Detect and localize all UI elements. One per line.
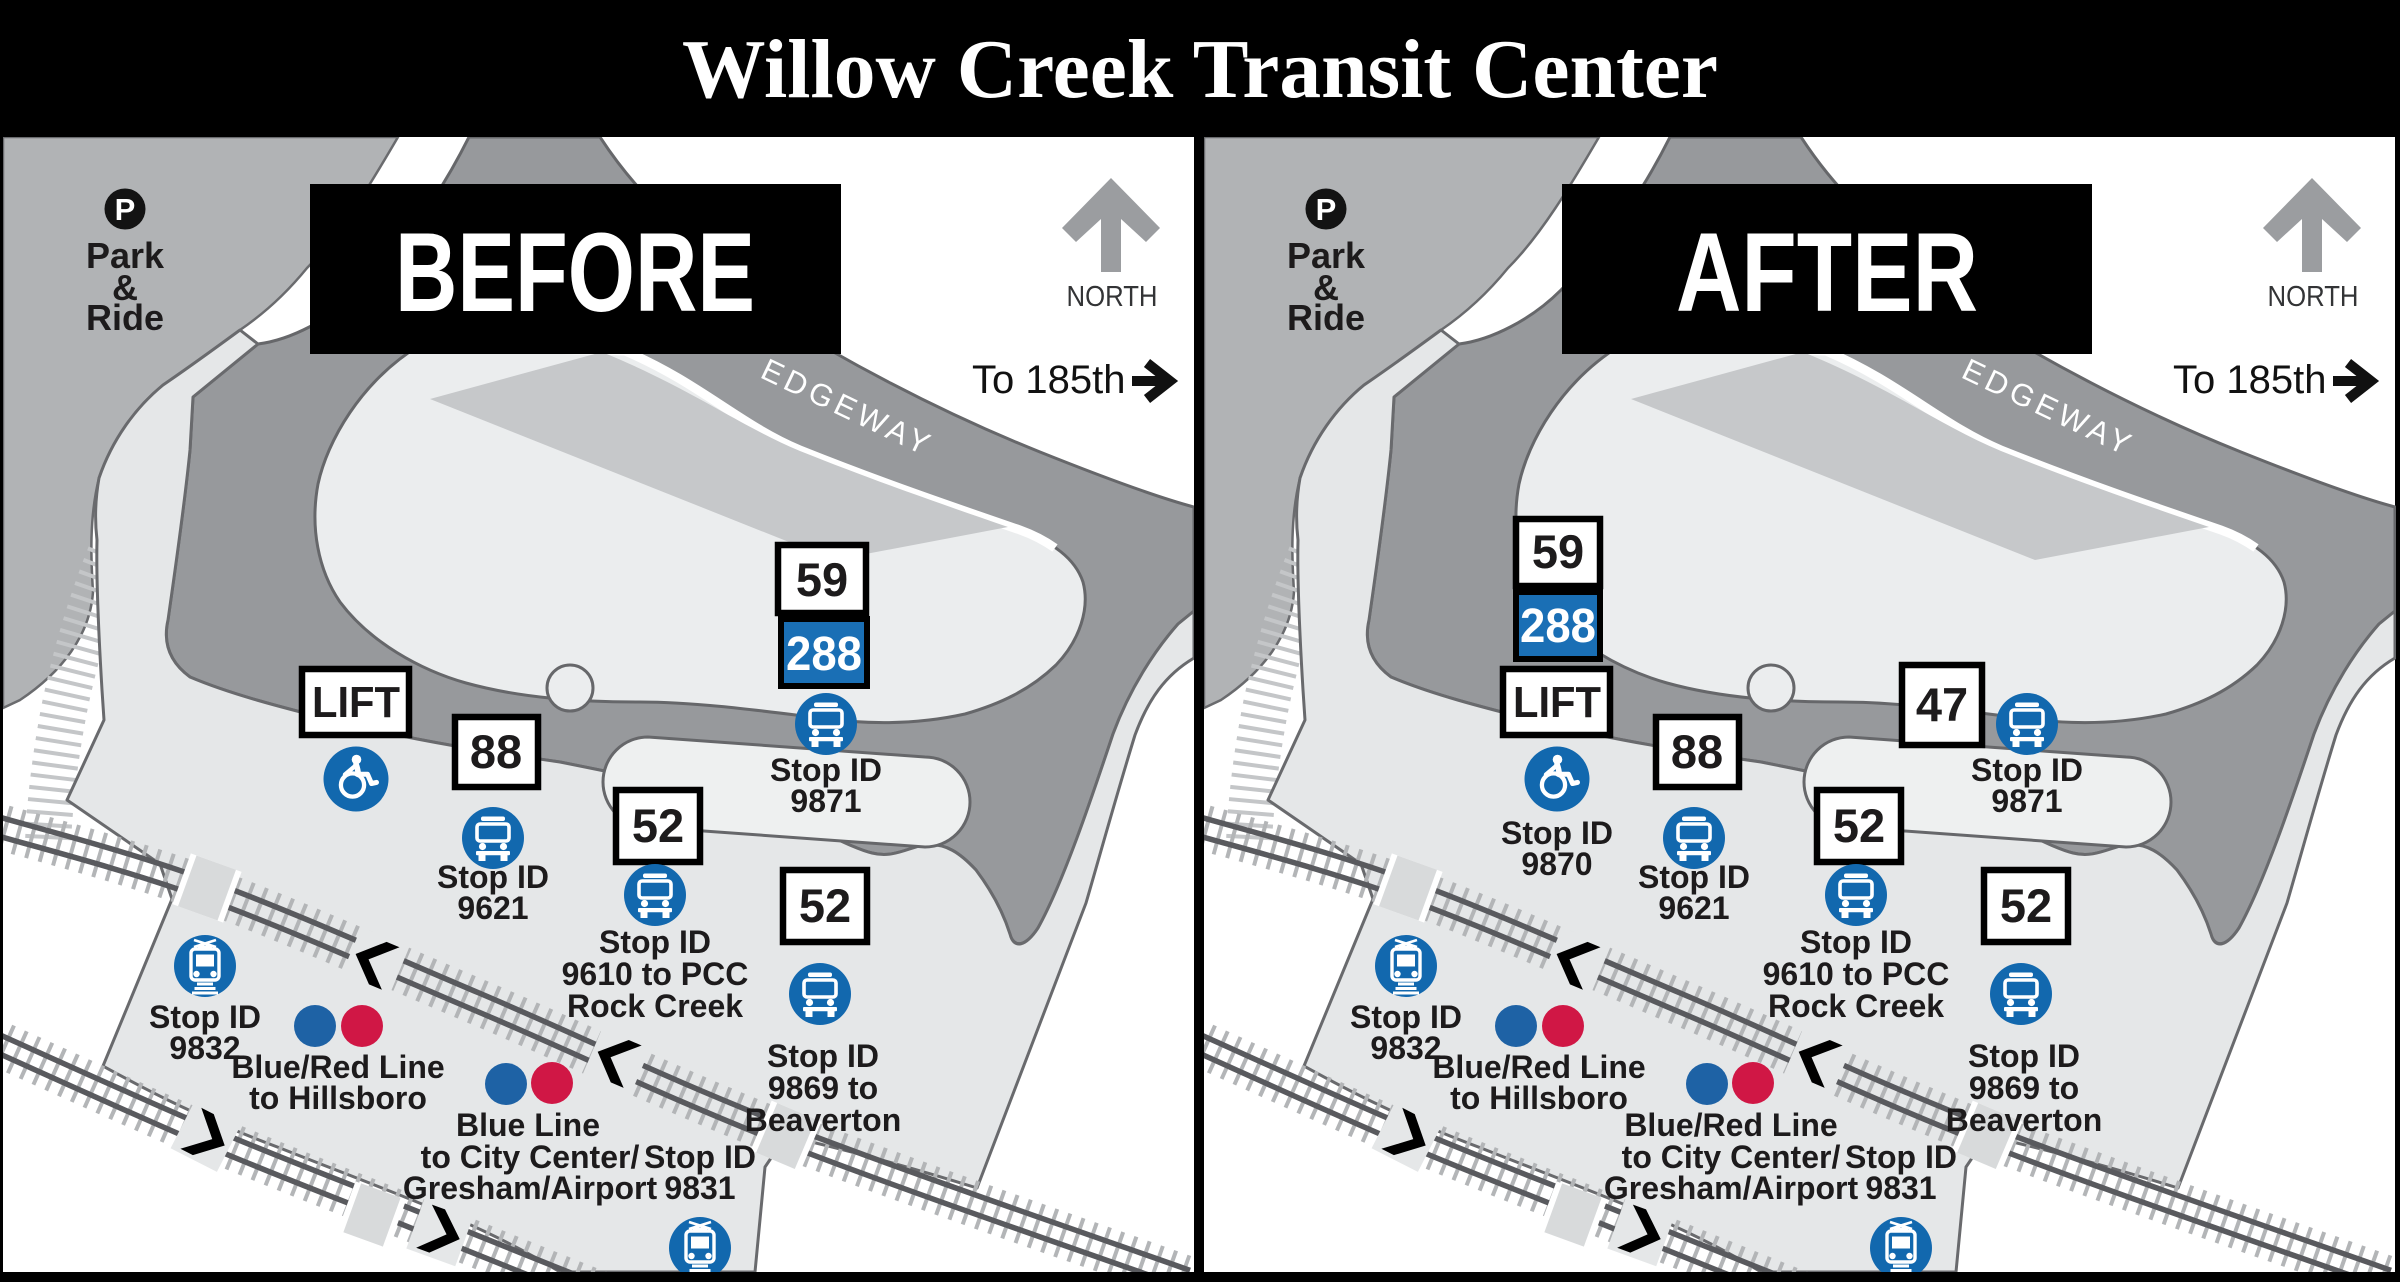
svg-text:47: 47: [1916, 678, 1968, 731]
svg-text:59: 59: [796, 553, 848, 606]
svg-text:Blue/Red Line: Blue/Red Line: [1624, 1107, 1837, 1143]
svg-text:BEFORE: BEFORE: [395, 210, 755, 335]
svg-text:Willow Creek Transit Center: Willow Creek Transit Center: [682, 23, 1718, 116]
svg-text:9870: 9870: [1521, 846, 1592, 882]
svg-text:Blue Line: Blue Line: [456, 1107, 600, 1143]
svg-text:59: 59: [1532, 525, 1584, 578]
svg-text:288: 288: [1520, 600, 1596, 653]
svg-text:288: 288: [786, 628, 862, 681]
svg-text:AFTER: AFTER: [1676, 210, 1978, 335]
